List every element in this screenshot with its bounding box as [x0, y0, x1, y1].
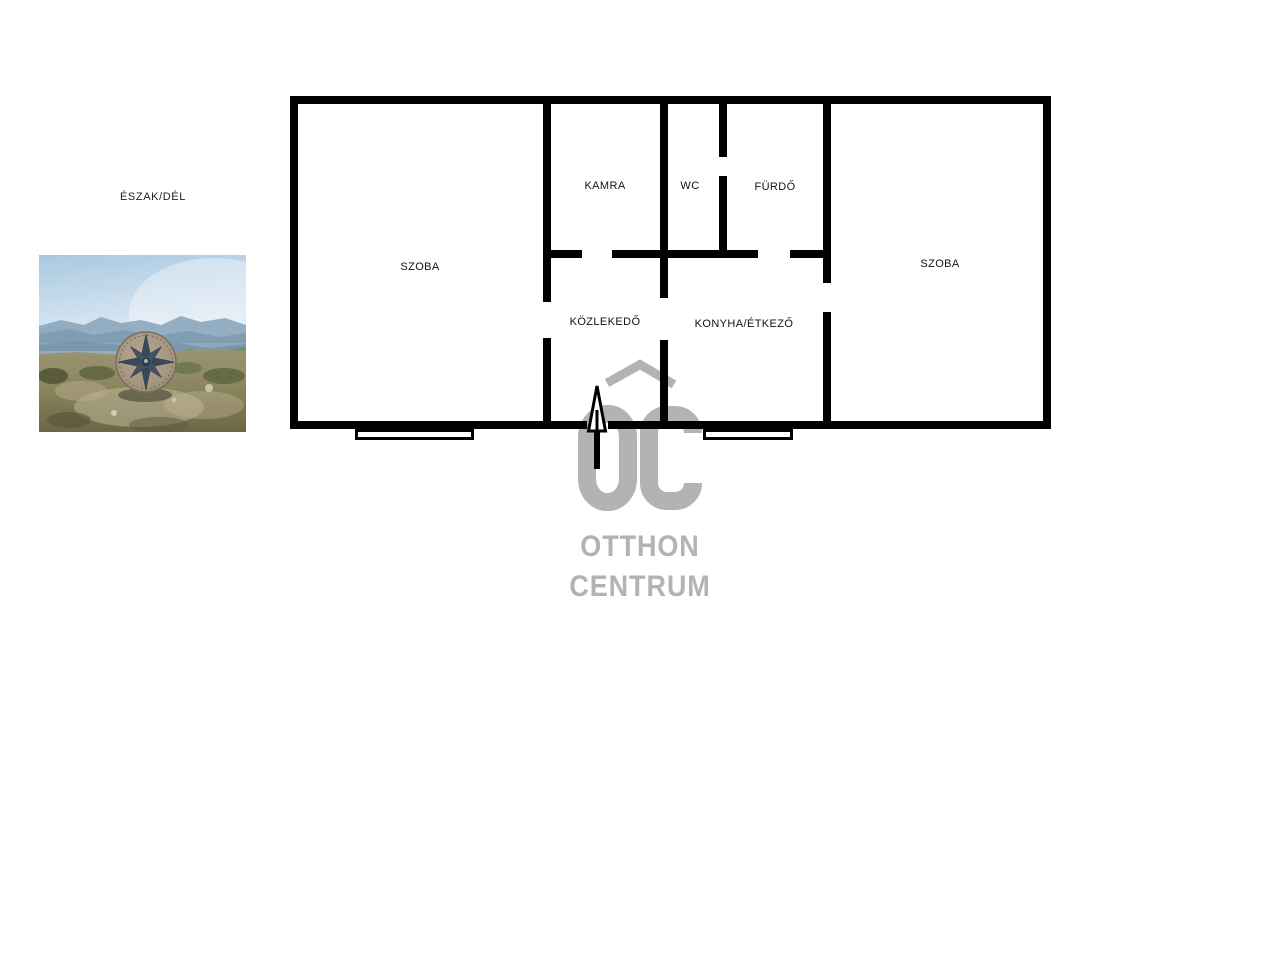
- room-label-furdo: FÜRDŐ: [754, 181, 795, 193]
- room-label-kamra: KAMRA: [584, 180, 625, 192]
- wall-segment: [290, 96, 1051, 104]
- wall-segment: [543, 104, 551, 302]
- wall-segment: [543, 250, 582, 258]
- compass-rose-icon: [116, 332, 176, 402]
- room-label-szoba-left: SZOBA: [400, 261, 439, 273]
- room-label-konyha: KONYHA/ÉTKEZŐ: [695, 318, 794, 330]
- wall-segment: [543, 338, 551, 421]
- wall-segment: [823, 312, 831, 421]
- wall-segment: [1043, 96, 1051, 429]
- room-label-kozlekedo: KÖZLEKEDŐ: [570, 316, 641, 328]
- wall-segment: [660, 104, 668, 298]
- logo-text-line1: OTTHON: [523, 532, 757, 562]
- orientation-label: ÉSZAK/DÉL: [120, 191, 186, 203]
- room-label-wc: WC: [680, 180, 699, 192]
- orientation-photo: [39, 255, 246, 432]
- north-arrow-icon: [578, 378, 620, 474]
- wall-segment: [719, 176, 727, 258]
- page: ÉSZAK/DÉL: [0, 0, 1280, 960]
- wall-segment: [790, 250, 831, 258]
- logo-text-line2: CENTRUM: [523, 572, 757, 602]
- wall-segment: [660, 340, 668, 421]
- wall-segment: [719, 104, 727, 157]
- wall-segment: [608, 421, 1051, 429]
- window-symbol: [703, 429, 793, 440]
- wall-segment: [612, 250, 758, 258]
- window-symbol: [355, 429, 474, 440]
- room-label-szoba-right: SZOBA: [920, 258, 959, 270]
- wall-segment: [290, 421, 587, 429]
- wall-segment: [290, 96, 298, 429]
